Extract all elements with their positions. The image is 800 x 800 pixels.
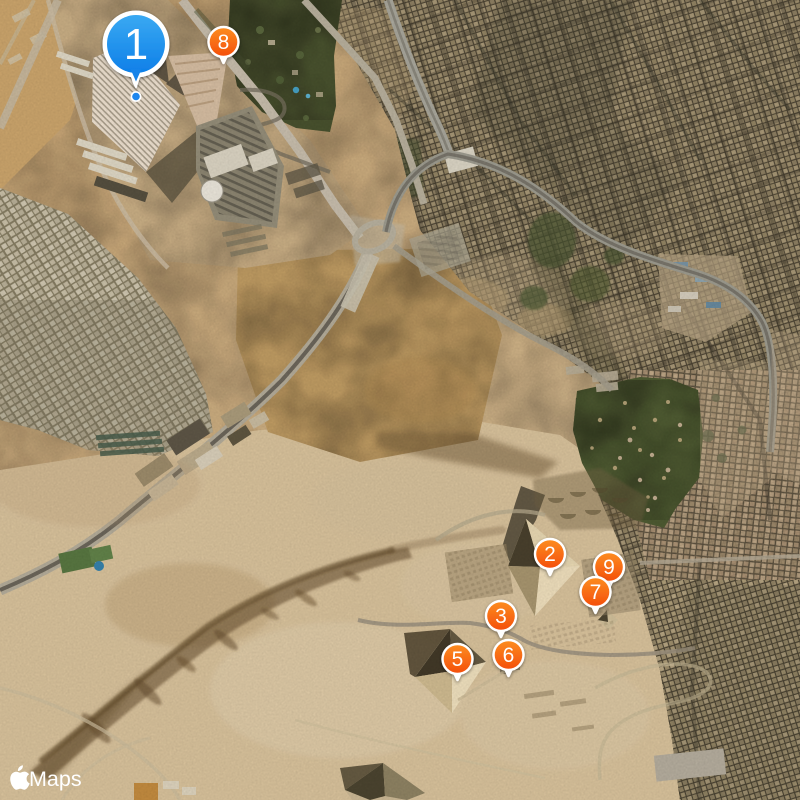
svg-text:3: 3 (495, 605, 507, 628)
svg-text:7: 7 (590, 581, 602, 604)
svg-text:9: 9 (603, 556, 615, 579)
svg-text:2: 2 (544, 543, 556, 566)
svg-text:1: 1 (124, 20, 148, 69)
svg-text:8: 8 (218, 31, 230, 54)
svg-text:6: 6 (503, 644, 515, 667)
svg-text:5: 5 (452, 648, 464, 671)
svg-text:Maps: Maps (29, 767, 82, 791)
